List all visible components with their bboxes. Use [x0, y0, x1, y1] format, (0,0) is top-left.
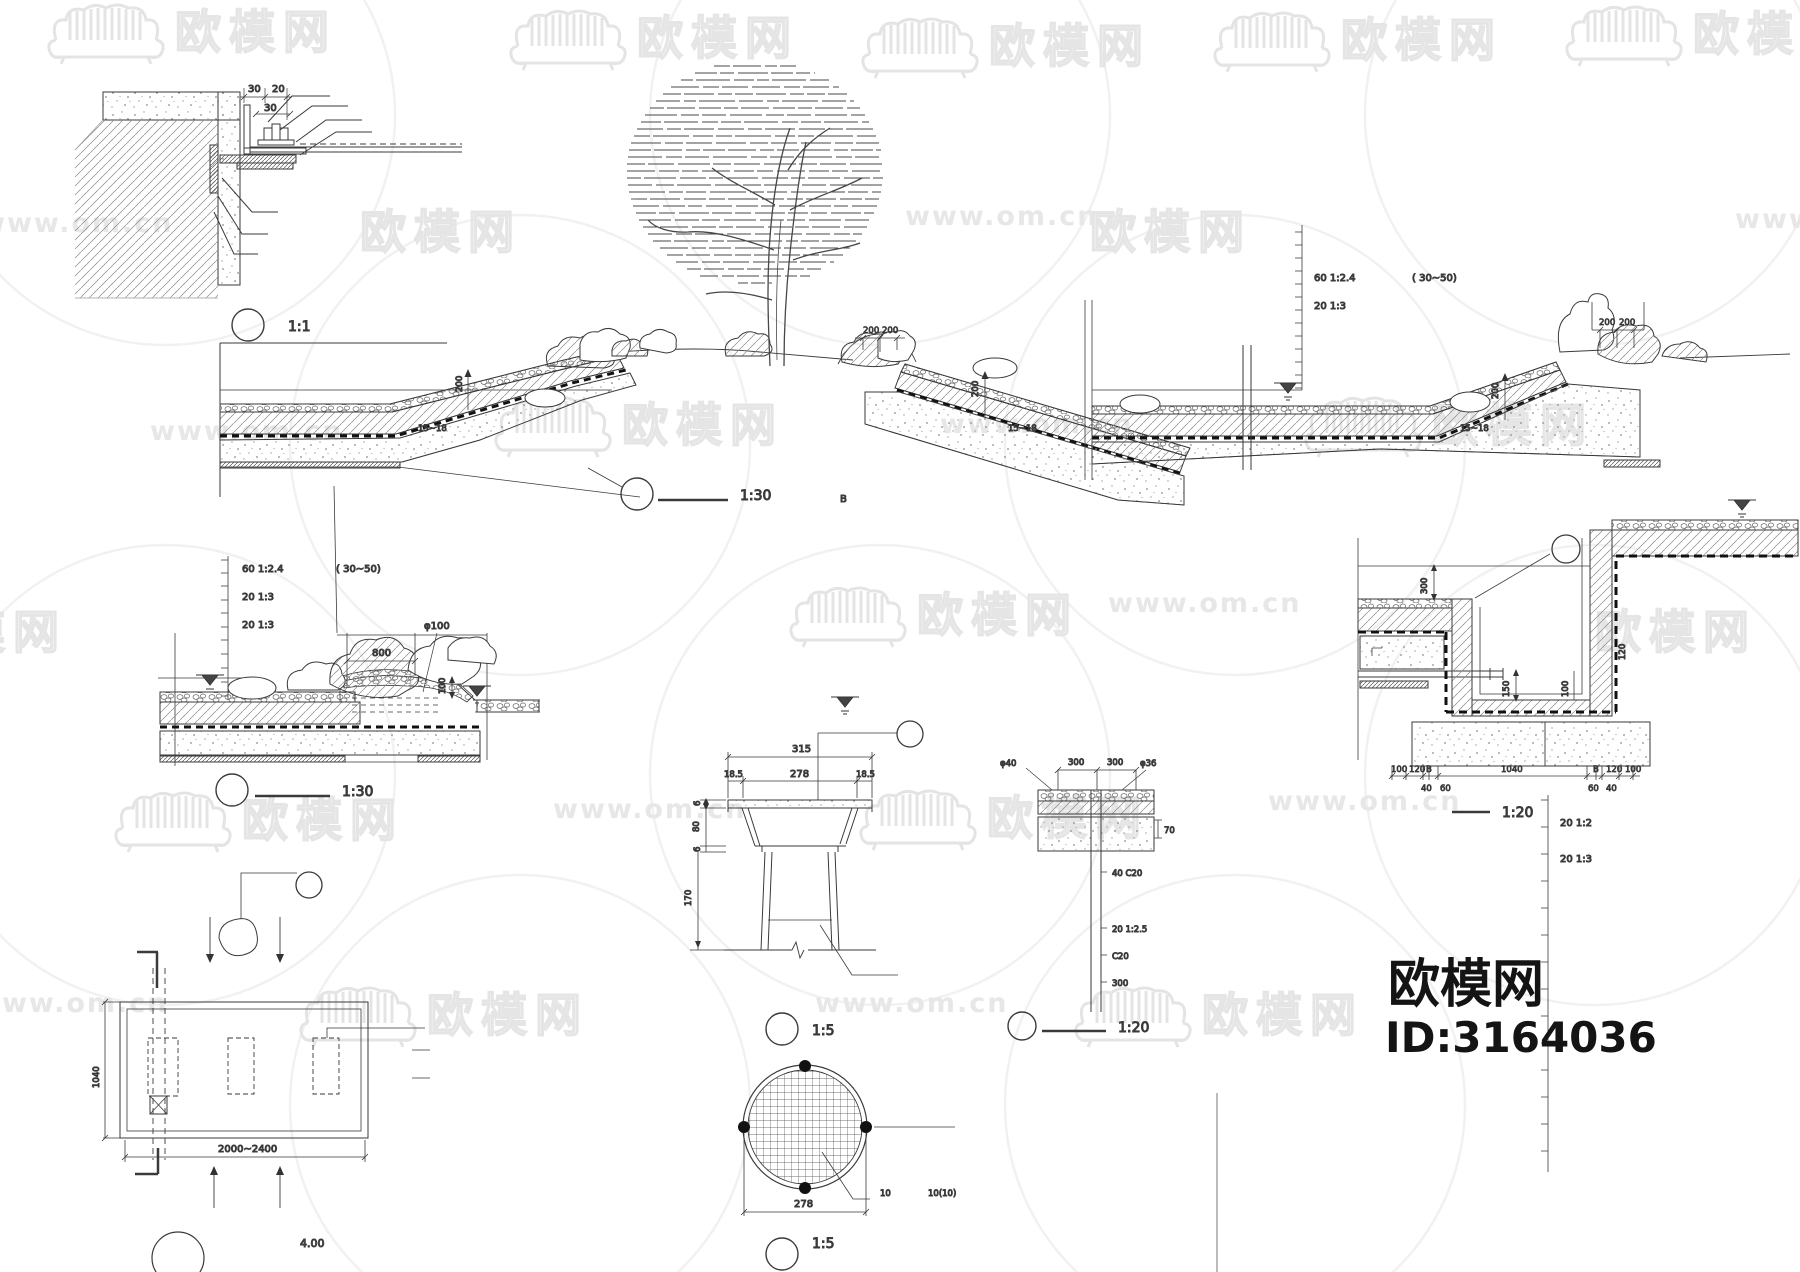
svg-text:120: 120 [1606, 765, 1622, 775]
grate-detail: 10 10(10) 278 1:5 [738, 1060, 956, 1270]
detail-bubble [766, 1238, 798, 1270]
svg-text:200: 200 [1491, 383, 1501, 399]
tree-elevation [627, 66, 883, 366]
note-label: 20 1:2.5 [1112, 925, 1147, 935]
svg-text:200: 200 [1599, 318, 1615, 328]
svg-text:B: B [1426, 765, 1432, 775]
note-label: 40 C20 [1112, 869, 1142, 879]
svg-text:www.om.cn: www.om.cn [905, 201, 1099, 232]
ruler-label: 20 1:2 [1560, 818, 1592, 829]
dim-label: 150 [1502, 681, 1512, 697]
tree-symbol [219, 919, 257, 956]
ruler-label: 60 1:2.4 [242, 564, 284, 575]
logo-brand: 欧模网 [1388, 955, 1544, 1015]
sofa-watermark-icon [49, 5, 163, 64]
svg-text:6: 6 [693, 801, 703, 806]
dim-label: 18.5 [724, 770, 743, 780]
detail-bubble [766, 1013, 798, 1045]
svg-text:欧模网: 欧模网 [0, 605, 67, 659]
dim-label: 70 [1164, 826, 1175, 836]
scale-label: 1:20 [1118, 1020, 1149, 1036]
dim-label: 20 [272, 84, 285, 95]
detail-bubble [897, 721, 923, 747]
dim-label: 2000~2400 [218, 1144, 277, 1155]
dim-label: 30 [248, 84, 261, 95]
svg-text:欧模网: 欧模网 [1693, 7, 1800, 61]
svg-text:40: 40 [1606, 784, 1617, 794]
dim-label: 30 [264, 103, 277, 114]
scale-label: 1:5 [812, 1023, 835, 1039]
note-label: 300 [1112, 979, 1128, 989]
dim-label: 18.5 [856, 770, 875, 780]
watermark-brand: 欧模网 [175, 5, 337, 59]
svg-text:www.om.cn: www.om.cn [815, 988, 1009, 1019]
logo-id: ID:3164036 [1385, 1013, 1657, 1062]
dim-label: 300 [1107, 758, 1123, 768]
tree-canopy [627, 66, 883, 283]
ruler-label: 20 1:3 [1560, 854, 1592, 865]
dim-label: 315 [792, 744, 811, 755]
slope-label: 15~18 [1460, 424, 1489, 434]
dim-label: 300 [1420, 578, 1430, 594]
dia-label: φ36 [1140, 759, 1156, 769]
svg-text:欧模网: 欧模网 [1341, 13, 1503, 67]
svg-text:40: 40 [1421, 784, 1432, 794]
svg-text:www.om.cn: www.om.cn [1108, 588, 1302, 619]
detail-bubble [296, 872, 322, 898]
cad-sheet: 欧模网 欧模网 欧模网 欧模网 欧模网 www.om.cn 欧模网 www.om… [0, 0, 1800, 1272]
svg-text:www.om.cn: www.om.cn [1268, 786, 1462, 817]
plan-detail: 1040 2000~2400 4.00 [92, 872, 430, 1272]
svg-text:200: 200 [863, 326, 879, 336]
svg-text:www.om.cn: www.om.cn [1735, 204, 1800, 235]
ruler-label: 20 1:3 [1314, 301, 1346, 312]
svg-text:60: 60 [1440, 784, 1451, 794]
ruler-range: ( 30~50) [1412, 273, 1457, 284]
section-ref-label: B [840, 494, 847, 505]
ruler-label: 20 1:3 [242, 592, 274, 603]
scale-label: 1:20 [1502, 805, 1533, 821]
dim-chain: 100 120 B 40 60 1040 60 40 B 120 100 [1389, 765, 1641, 794]
dim-label: 278 [794, 1199, 813, 1210]
detail-bubble [216, 774, 248, 806]
note-label: 10 [880, 1189, 891, 1199]
svg-text:200: 200 [1619, 318, 1635, 328]
ruler-label: 60 1:2.4 [1314, 273, 1356, 284]
svg-text:6: 6 [693, 847, 703, 852]
svg-text:100: 100 [1391, 765, 1407, 775]
svg-text:120: 120 [1409, 765, 1425, 775]
dim-label: 300 [1068, 758, 1084, 768]
scale-label: 1:30 [740, 488, 771, 504]
scale-label: 1:1 [288, 319, 311, 335]
trench-detail: 300 150 100 120 100 120 B 40 60 1040 60 … [1358, 500, 1798, 1172]
note-label: 10(10) [928, 1189, 956, 1199]
svg-text:欧模网: 欧模网 [637, 11, 799, 65]
svg-text:200: 200 [971, 381, 981, 397]
svg-text:B: B [1593, 765, 1599, 775]
svg-text:www.om.cn: www.om.cn [0, 988, 169, 1019]
dim-label: 100 [1561, 681, 1571, 697]
dim-label: 278 [790, 769, 809, 780]
svg-text:200: 200 [882, 326, 898, 336]
svg-text:欧模网: 欧模网 [1090, 205, 1252, 259]
svg-text:欧模网: 欧模网 [917, 588, 1079, 642]
svg-text:200: 200 [455, 376, 465, 392]
scale-label: 1:30 [342, 784, 373, 800]
watermark-circles [0, 0, 1800, 1272]
svg-text:170: 170 [684, 890, 694, 906]
dia-label: φ40 [1000, 759, 1016, 769]
ruler-label: 20 1:3 [242, 620, 274, 631]
svg-text:欧模网: 欧模网 [360, 205, 522, 259]
svg-text:60: 60 [1588, 784, 1599, 794]
svg-text:欧模网: 欧模网 [427, 988, 589, 1042]
ruler-range: ( 30~50) [336, 564, 381, 575]
dim-label: 1040 [92, 1066, 102, 1088]
slope-label: 15~18 [418, 424, 447, 434]
slope-label: 15~18 [1008, 424, 1037, 434]
svg-text:欧模网: 欧模网 [622, 398, 784, 452]
elevation-label: 4.00 [300, 1237, 325, 1250]
note-label: C20 [1112, 952, 1129, 962]
svg-text:80: 80 [692, 821, 702, 832]
left-detail: 60 1:2.4 20 1:3 20 1:3 ( 30~50) 800 [158, 486, 540, 806]
watermark-layer: 欧模网 欧模网 欧模网 欧模网 欧模网 www.om.cn 欧模网 www.om… [0, 0, 1800, 1272]
svg-text:欧模网: 欧模网 [1202, 988, 1364, 1042]
dim-label: 100 [438, 678, 448, 694]
svg-text:欧模网: 欧模网 [989, 19, 1151, 73]
svg-text:1040: 1040 [1501, 765, 1523, 775]
dim-label: 800 [372, 648, 391, 659]
scale-label: 1:5 [812, 1236, 835, 1252]
dim-label: 120 [1618, 644, 1628, 660]
svg-text:www.om.cn: www.om.cn [553, 794, 747, 825]
svg-text:100: 100 [1625, 765, 1641, 775]
detail-bubble [152, 1232, 204, 1272]
mound-dims: 200 200 200 200 [855, 302, 1644, 352]
detail-bubble [621, 478, 653, 510]
dia-label: φ100 [424, 621, 450, 632]
svg-text:欧模网: 欧模网 [242, 793, 404, 847]
